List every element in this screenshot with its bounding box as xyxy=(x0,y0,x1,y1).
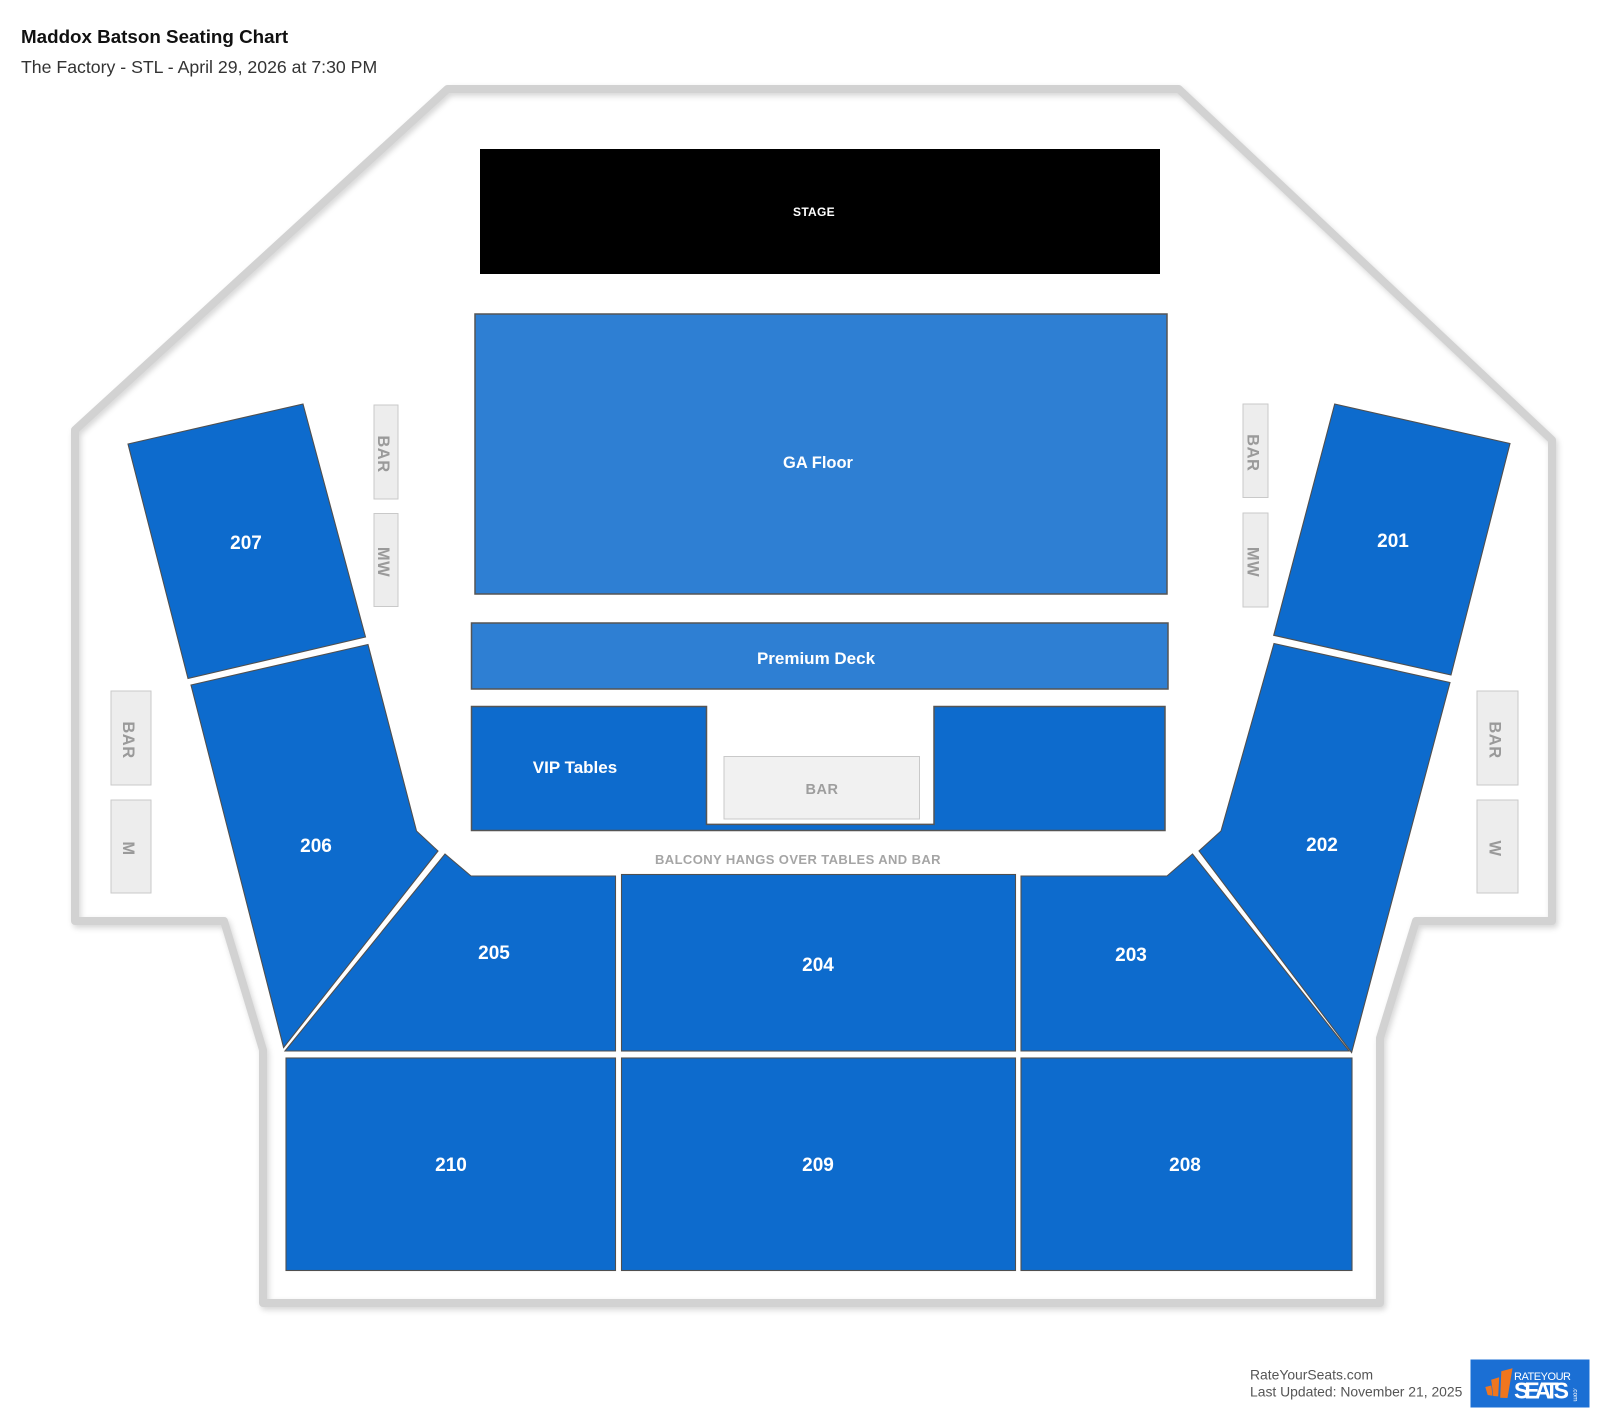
svg-text:GA Floor: GA Floor xyxy=(783,454,854,472)
svg-text:BAR: BAR xyxy=(374,435,392,472)
svg-text:MW: MW xyxy=(374,547,392,577)
svg-text:BAR: BAR xyxy=(1243,434,1261,471)
svg-text:W: W xyxy=(1485,840,1503,856)
svg-text:RateYourSeats.com: RateYourSeats.com xyxy=(1250,1367,1373,1383)
svg-text:201: 201 xyxy=(1377,531,1409,552)
svg-text:VIP Tables: VIP Tables xyxy=(533,758,617,777)
svg-text:210: 210 xyxy=(435,1155,467,1176)
svg-text:BALCONY HANGS OVER TABLES AND: BALCONY HANGS OVER TABLES AND BAR xyxy=(655,852,941,867)
svg-text:Last Updated: November 21, 202: Last Updated: November 21, 2025 xyxy=(1250,1384,1463,1400)
svg-text:BAR: BAR xyxy=(119,721,137,758)
svg-text:202: 202 xyxy=(1306,835,1338,856)
svg-text:207: 207 xyxy=(230,533,262,554)
svg-text:203: 203 xyxy=(1115,945,1147,966)
svg-text:SEATS: SEATS xyxy=(1514,1378,1569,1404)
svg-text:BAR: BAR xyxy=(806,782,839,798)
svg-text:206: 206 xyxy=(300,836,332,857)
svg-text:208: 208 xyxy=(1169,1155,1201,1176)
svg-text:BAR: BAR xyxy=(1485,721,1503,758)
svg-text:.com: .com xyxy=(1572,1387,1579,1401)
svg-text:MW: MW xyxy=(1243,547,1261,577)
svg-text:209: 209 xyxy=(802,1155,834,1176)
svg-text:STAGE: STAGE xyxy=(793,205,835,219)
svg-text:205: 205 xyxy=(478,943,510,964)
svg-text:Premium Deck: Premium Deck xyxy=(757,649,876,668)
svg-text:M: M xyxy=(119,841,137,855)
svg-text:204: 204 xyxy=(802,955,834,976)
